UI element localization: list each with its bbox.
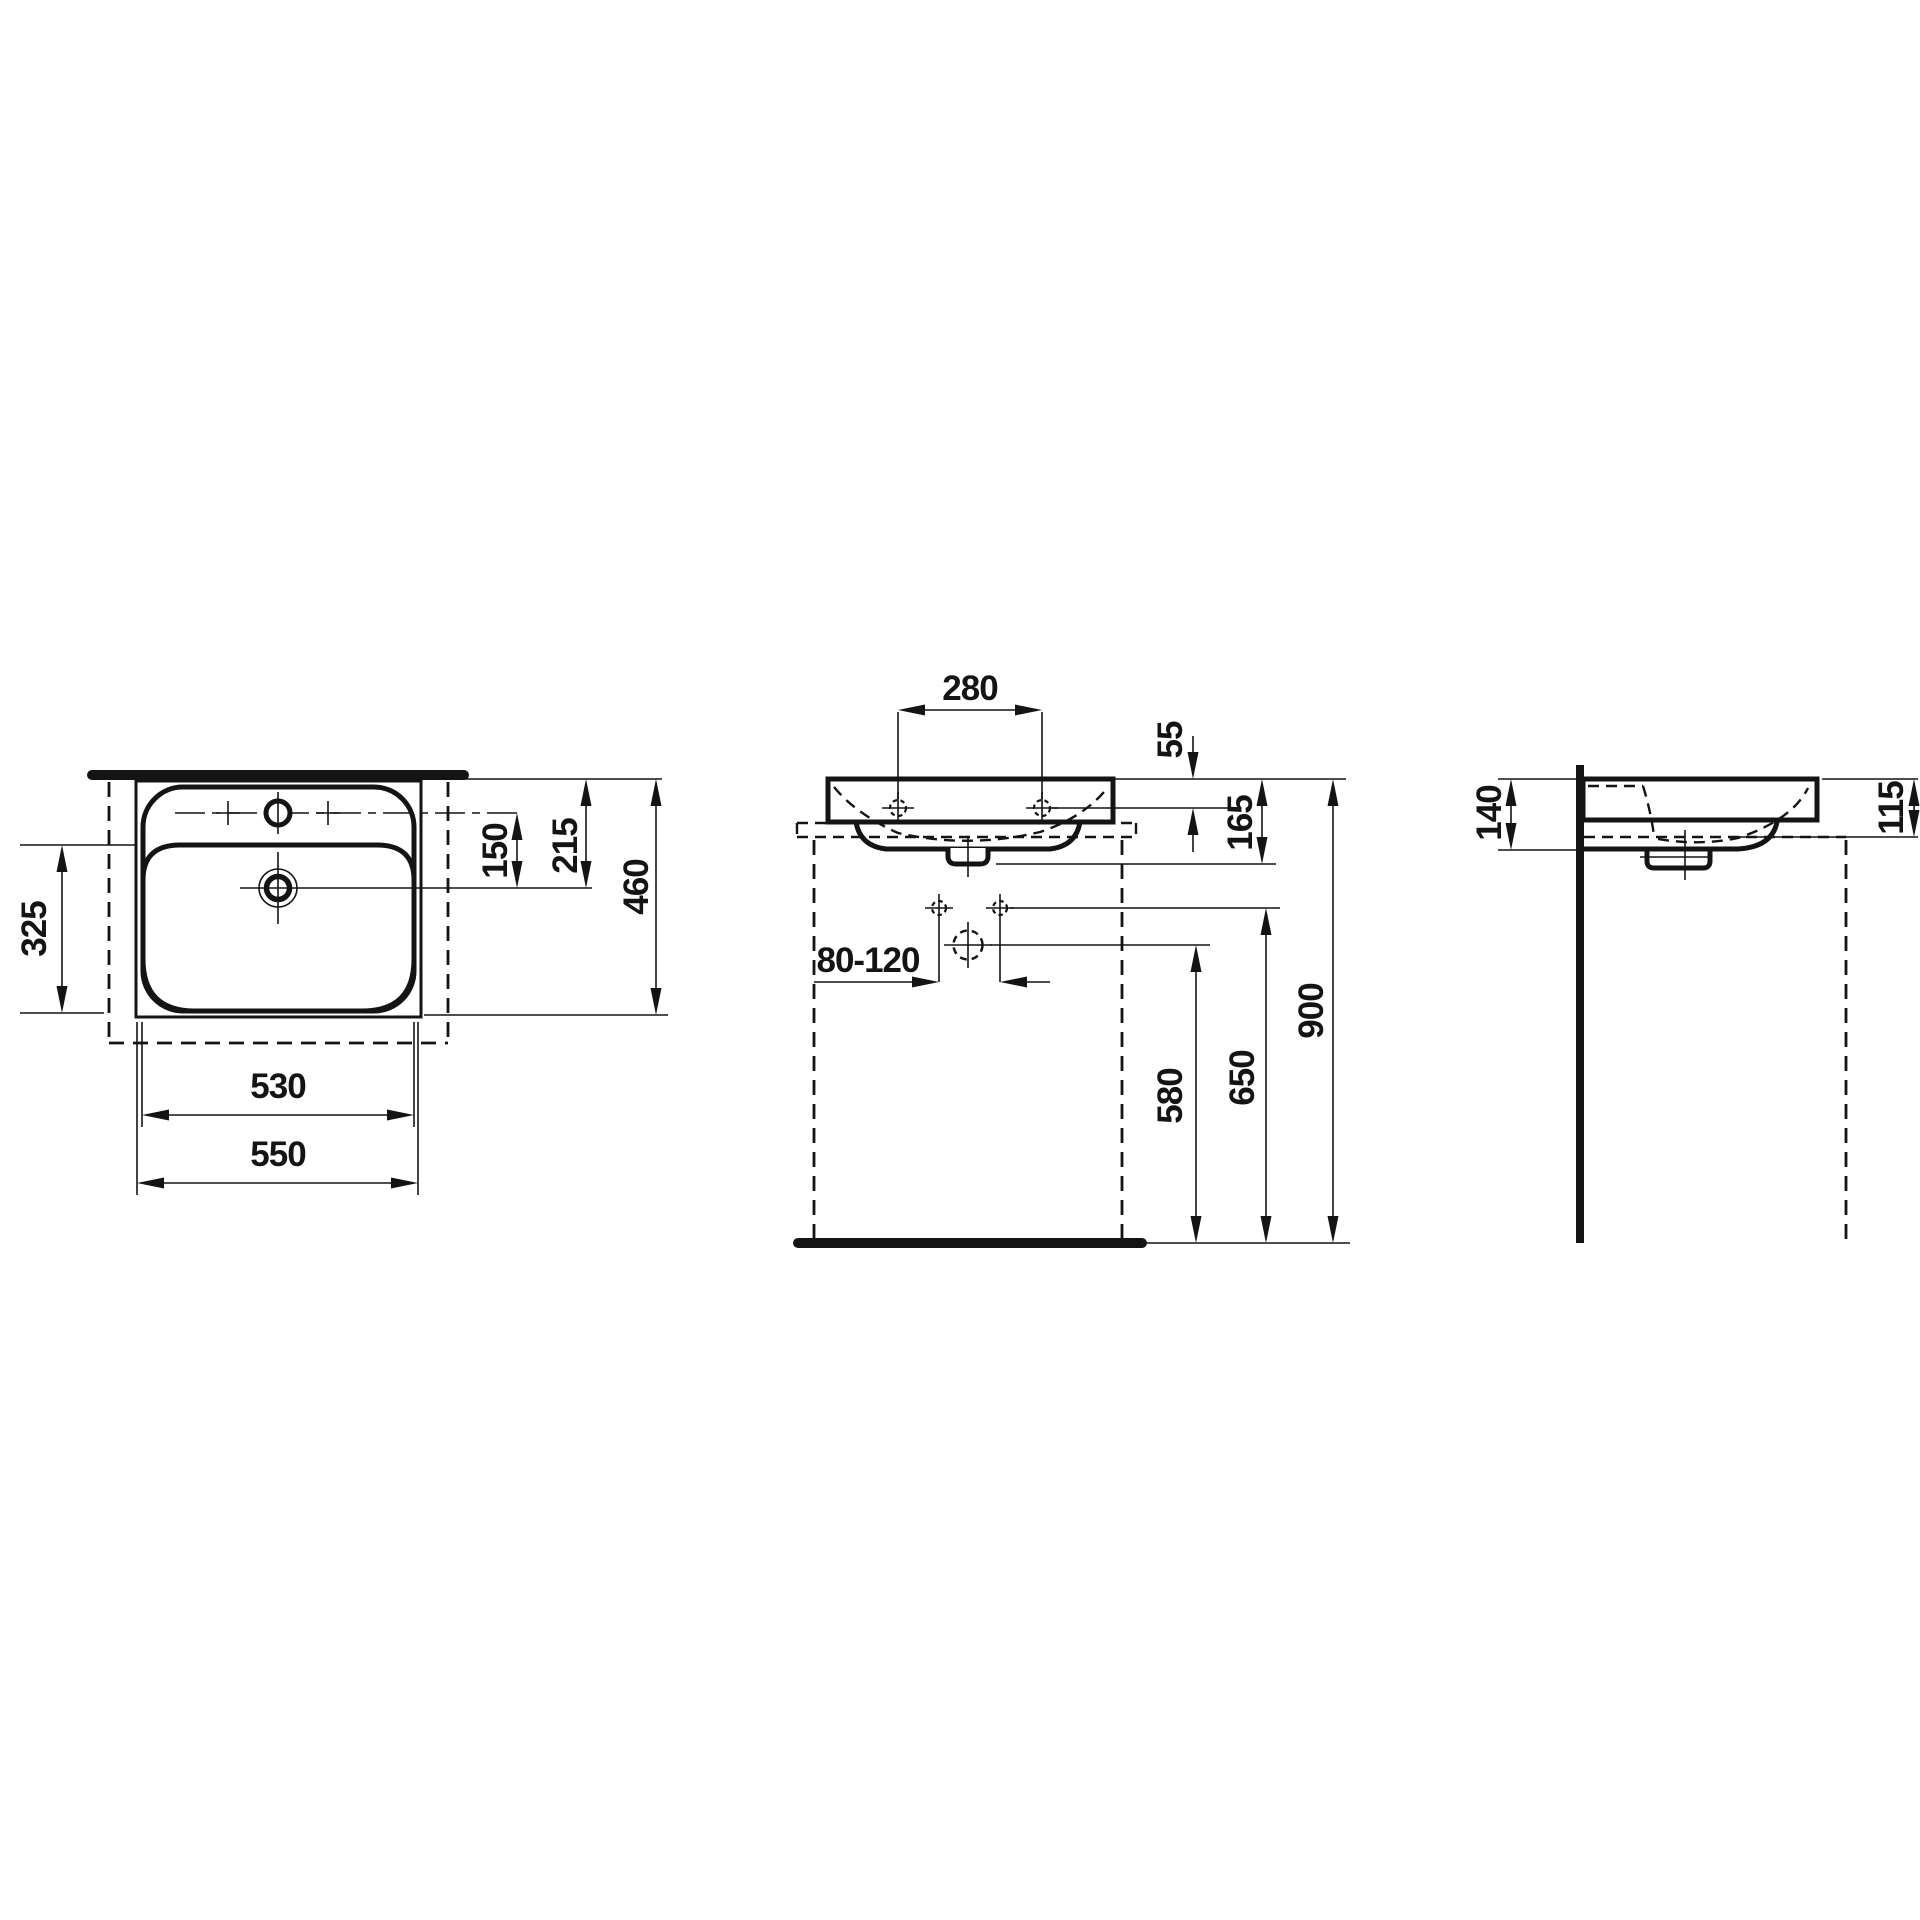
dim-label-165: 165: [1221, 795, 1260, 851]
dim-overall-width: 550: [137, 1022, 418, 1195]
drain-outlet-icon: [944, 922, 992, 968]
dim-label-150: 150: [476, 823, 515, 879]
dim-label-460: 460: [617, 859, 656, 915]
dim-label-115: 115: [1872, 781, 1911, 835]
fixing-hole-icons: [925, 894, 1014, 982]
side-view: 140 115: [1470, 765, 1920, 1243]
dim-label-325: 325: [15, 901, 54, 957]
dim-label-215: 215: [546, 818, 585, 874]
dim-top-to-trap: 165: [1221, 779, 1268, 864]
dim-bowl-depth: 325: [15, 845, 136, 1013]
dim-rear-ledge-depth: 140: [1470, 779, 1580, 850]
dim-overall-depth: 460: [424, 779, 668, 1015]
front-view: 280 55 165: [797, 669, 1350, 1243]
dim-edge-to-drain: 215: [546, 779, 592, 888]
dim-fixing-bolt-spacing: 80-120: [814, 941, 1050, 988]
dim-top-to-face-holes: 55: [1151, 721, 1199, 852]
top-view: 325 530 550 150: [15, 775, 668, 1195]
dim-drain-outlet-height: 580: [1151, 945, 1202, 1243]
dim-label-80-120: 80-120: [817, 941, 921, 980]
dim-label-900: 900: [1292, 983, 1331, 1039]
dim-tap-to-drain: 150: [476, 813, 523, 888]
technical-drawing-washbasin: 325 530 550 150: [0, 0, 1920, 1920]
basin-front-outline: [828, 779, 1113, 822]
dim-bowl-width: 530: [142, 1022, 414, 1127]
dim-label-55: 55: [1151, 721, 1190, 758]
trap-side-outline: [1647, 849, 1710, 868]
dim-label-550: 550: [250, 1135, 306, 1174]
tap-hole-icon: [175, 792, 519, 834]
dim-label-280: 280: [942, 669, 998, 708]
dim-label-140: 140: [1470, 785, 1509, 841]
dim-fixing-bolt-height: 650: [1223, 908, 1272, 1243]
basin-side-outline: [1583, 779, 1817, 820]
dim-label-580: 580: [1151, 1068, 1190, 1124]
dim-label-650: 650: [1223, 1050, 1262, 1106]
dim-rim-height: 900: [1292, 779, 1339, 1243]
dim-label-530: 530: [250, 1067, 306, 1106]
